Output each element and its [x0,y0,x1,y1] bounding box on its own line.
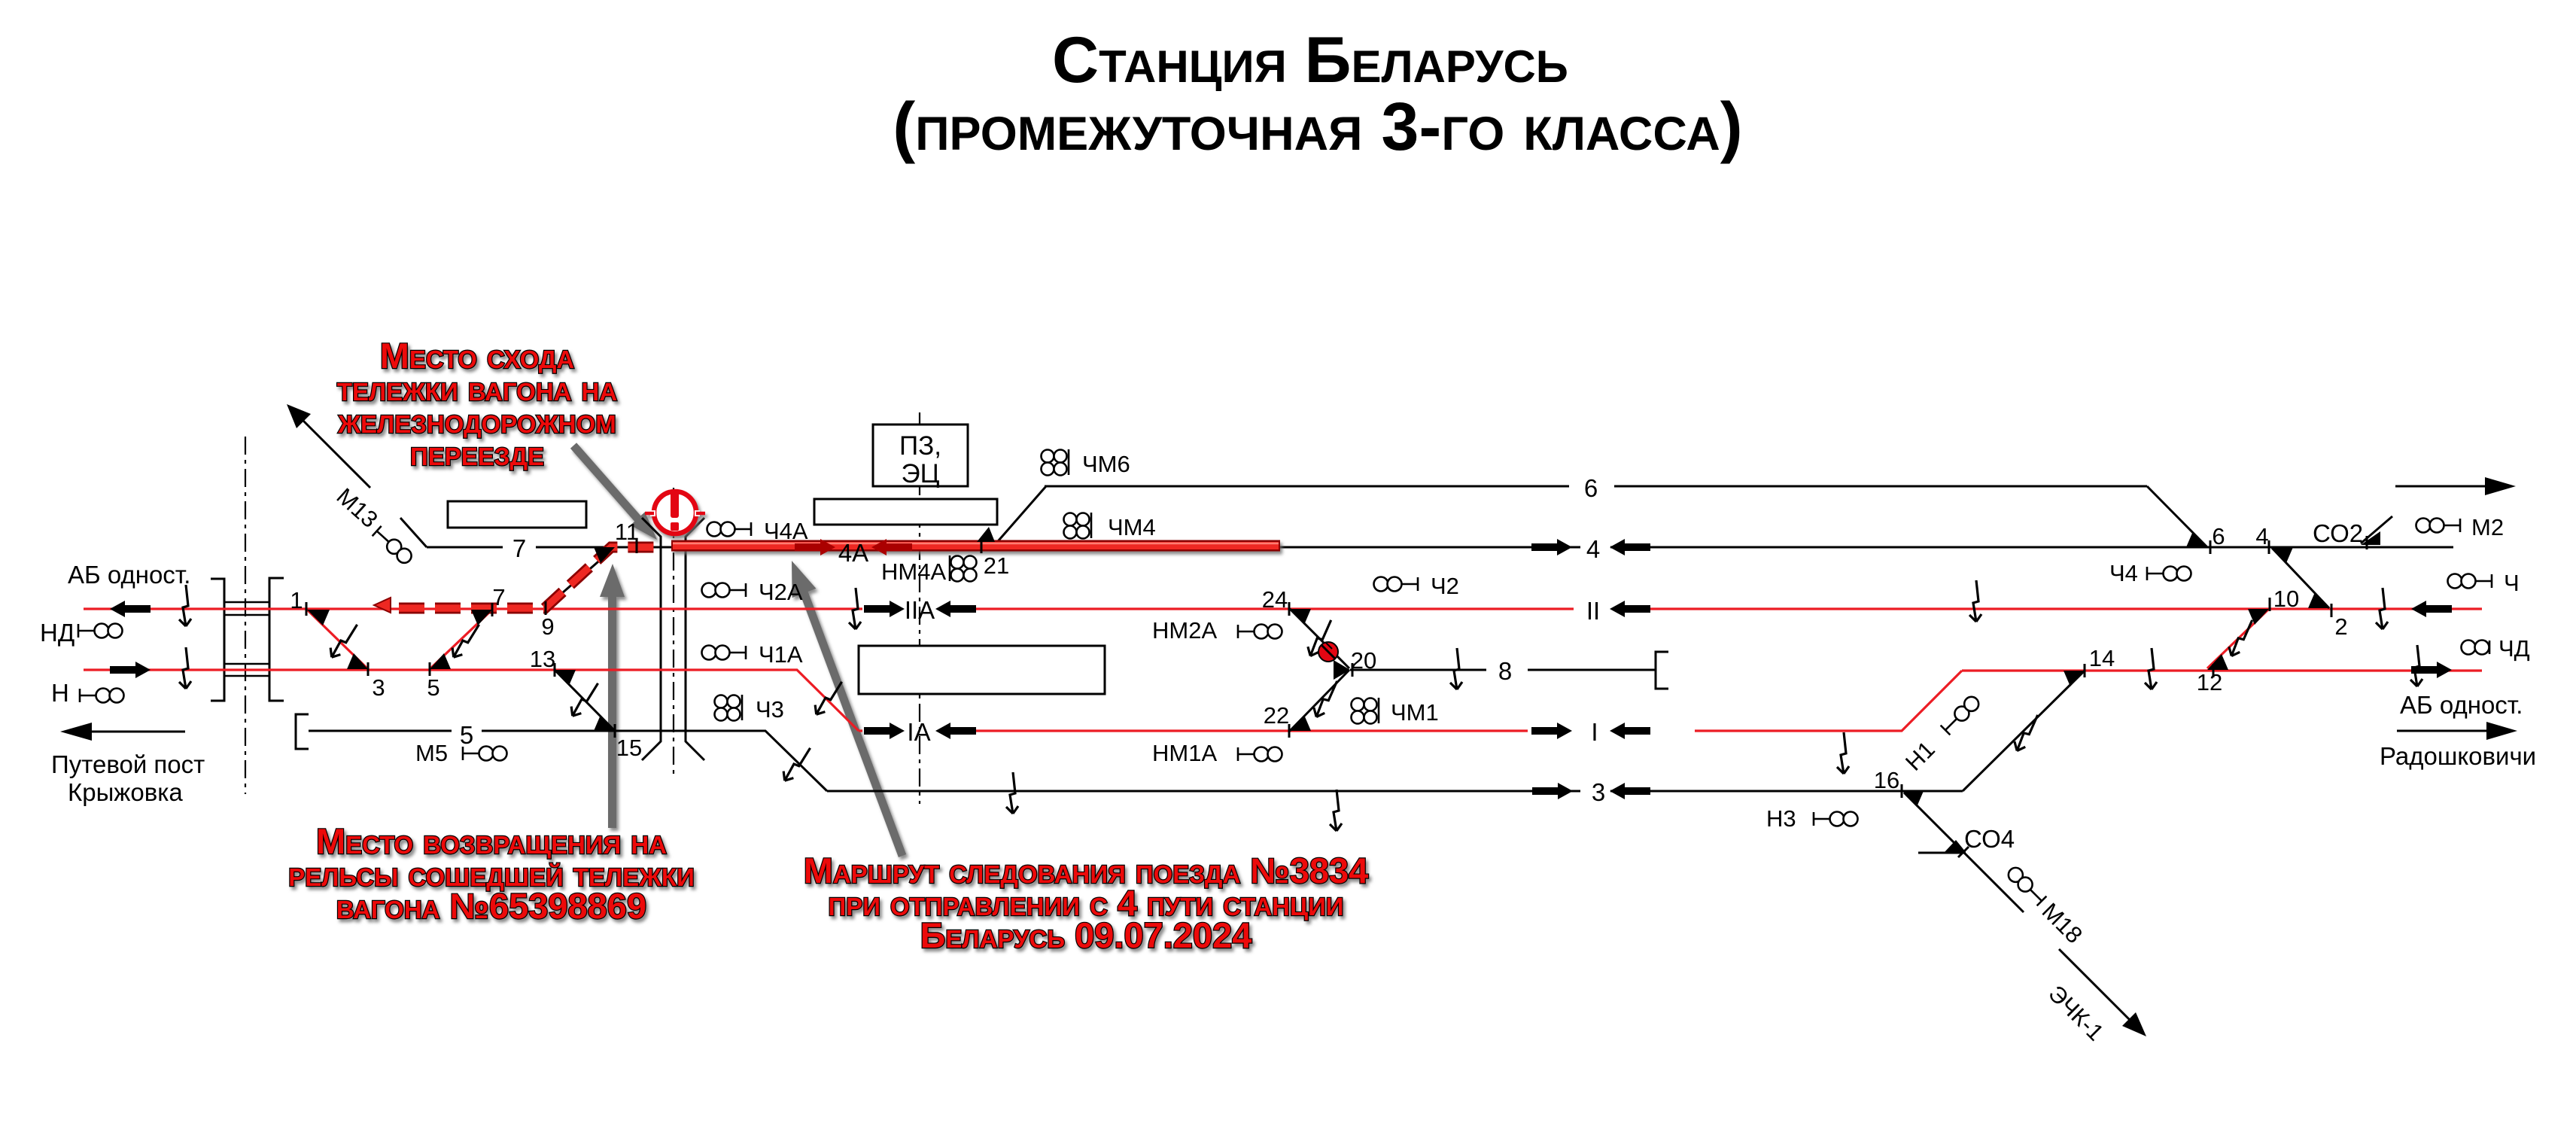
svg-text:Радошковичи: Радошковичи [2380,742,2536,770]
svg-text:22: 22 [1264,702,1289,729]
svg-text:13: 13 [530,646,555,672]
svg-text:Н3: Н3 [1766,805,1796,832]
svg-text:14: 14 [2089,645,2115,671]
svg-text:20: 20 [1351,647,1376,674]
svg-text:21: 21 [984,552,1009,579]
svg-text:24: 24 [1262,586,1288,613]
svg-text:Путевой пост: Путевой пост [51,750,205,778]
svg-text:ЧМ1: ЧМ1 [1391,699,1439,726]
svg-text:НМ1А: НМ1А [1152,740,1217,766]
svg-text:2: 2 [2334,613,2347,640]
svg-text:Станция Беларусь: Станция Беларусь [1052,24,1568,96]
svg-text:ЧМ4: ЧМ4 [1108,514,1156,540]
svg-text:СО4: СО4 [1964,825,2015,853]
svg-text:Крыжовка: Крыжовка [68,778,183,806]
svg-text:6: 6 [1584,474,1598,502]
svg-text:15: 15 [616,735,642,761]
svg-text:12: 12 [2197,669,2222,695]
svg-text:Ч2: Ч2 [1431,573,1459,599]
svg-text:1: 1 [290,587,303,613]
svg-text:Ч2А: Ч2А [759,579,803,605]
svg-text:Ч4А: Ч4А [764,518,808,544]
svg-text:ПЗ,: ПЗ, [899,431,941,461]
svg-text:I: I [1591,718,1598,746]
svg-text:ЭЦ: ЭЦ [901,459,939,488]
svg-text:ЧМ6: ЧМ6 [1082,451,1130,477]
svg-text:7: 7 [512,534,526,562]
svg-text:ЧД: ЧД [2498,635,2530,662]
svg-text:Н: Н [51,679,69,707]
svg-text:3: 3 [372,674,385,701]
svg-text:Беларусь 09.07.2024: Беларусь 09.07.2024 [920,915,1252,955]
svg-text:НМ4А: НМ4А [881,558,946,585]
svg-text:Ч4: Ч4 [2109,560,2138,586]
svg-text:IIА: IIА [905,596,935,624]
svg-text:5: 5 [460,721,473,749]
svg-text:8: 8 [1498,657,1512,685]
svg-text:АБ одност.: АБ одност. [68,561,190,589]
svg-text:Ч3: Ч3 [756,696,784,723]
svg-text:II: II [1586,597,1600,625]
svg-text:16: 16 [1874,767,1899,793]
svg-text:НМ2А: НМ2А [1152,617,1217,644]
svg-text:Ч: Ч [2504,570,2520,596]
svg-text:СО2: СО2 [2313,519,2363,547]
svg-text:вагона №65398869: вагона №65398869 [336,886,646,926]
svg-text:7: 7 [492,584,505,610]
svg-text:11: 11 [615,519,639,545]
svg-text:IА: IА [907,718,930,746]
svg-text:переезде: переезде [410,433,544,473]
svg-text:(промежуточная 3-го класса): (промежуточная 3-го класса) [893,90,1743,165]
svg-text:М2: М2 [2471,514,2504,540]
svg-text:4: 4 [1586,535,1600,563]
svg-text:М5: М5 [415,740,448,766]
svg-text:9: 9 [541,613,554,640]
svg-text:Ч1А: Ч1А [759,641,803,668]
svg-text:НД: НД [40,619,75,647]
svg-text:4А: 4А [838,539,868,567]
svg-text:5: 5 [427,674,439,701]
svg-text:3: 3 [1592,778,1605,806]
svg-text:10: 10 [2273,586,2299,612]
svg-text:4: 4 [2255,523,2268,549]
svg-text:6: 6 [2212,523,2225,549]
svg-text:АБ одност.: АБ одност. [2400,691,2523,719]
